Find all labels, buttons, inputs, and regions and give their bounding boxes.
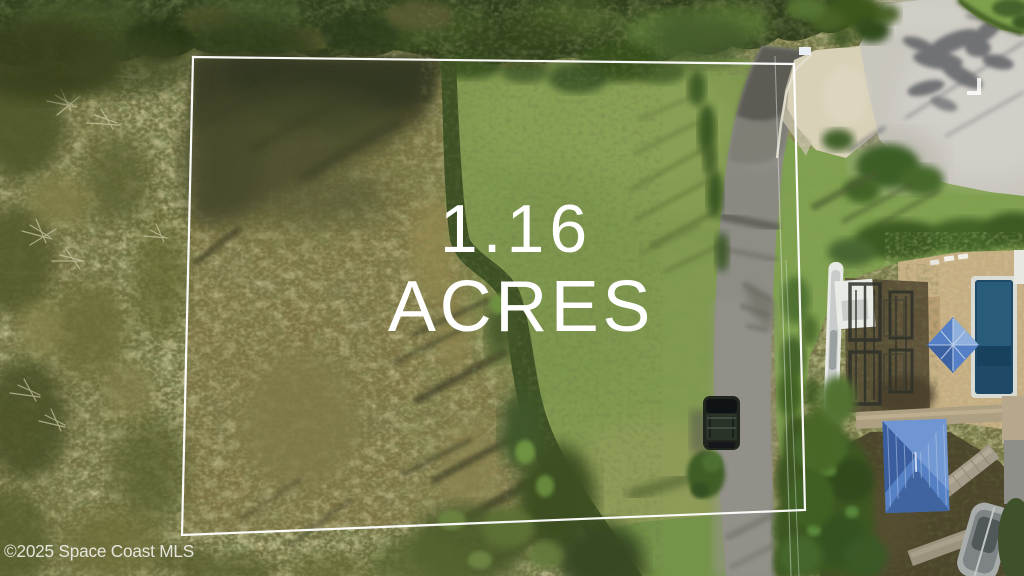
svg-text:ACRES: ACRES — [388, 267, 654, 347]
svg-text:1.16: 1.16 — [440, 191, 592, 267]
svg-text:©2025 Space Coast MLS: ©2025 Space Coast MLS — [4, 541, 194, 561]
